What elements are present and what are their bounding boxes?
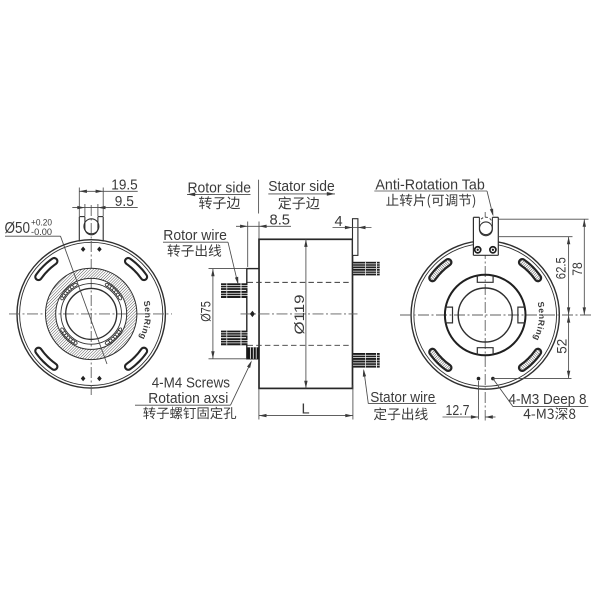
svg-text:12.7: 12.7 bbox=[446, 403, 470, 419]
svg-text:62.5: 62.5 bbox=[554, 257, 570, 279]
svg-text:Ø50: Ø50 bbox=[5, 220, 31, 237]
svg-text:52: 52 bbox=[554, 339, 570, 354]
svg-text:4-M3 Deep 8: 4-M3 Deep 8 bbox=[509, 391, 587, 408]
svg-text:4: 4 bbox=[335, 214, 343, 230]
svg-text:L: L bbox=[302, 402, 310, 418]
svg-text:-0.00: -0.00 bbox=[31, 227, 52, 237]
svg-text:78: 78 bbox=[570, 262, 586, 276]
svg-text:Rotor wire: Rotor wire bbox=[163, 227, 227, 244]
svg-text:Stator side: Stator side bbox=[268, 178, 334, 195]
svg-text:Ø75: Ø75 bbox=[198, 301, 213, 322]
svg-text:Rotation axsi: Rotation axsi bbox=[148, 390, 228, 407]
svg-text:+0.20: +0.20 bbox=[31, 218, 52, 228]
svg-text:19.5: 19.5 bbox=[111, 178, 137, 194]
svg-text:4-M4 Screws: 4-M4 Screws bbox=[152, 375, 230, 392]
svg-text:8.5: 8.5 bbox=[270, 213, 291, 229]
svg-text:9.5: 9.5 bbox=[115, 194, 134, 210]
svg-text:Rotor side: Rotor side bbox=[188, 179, 252, 196]
svg-text:Ø119: Ø119 bbox=[292, 294, 307, 334]
